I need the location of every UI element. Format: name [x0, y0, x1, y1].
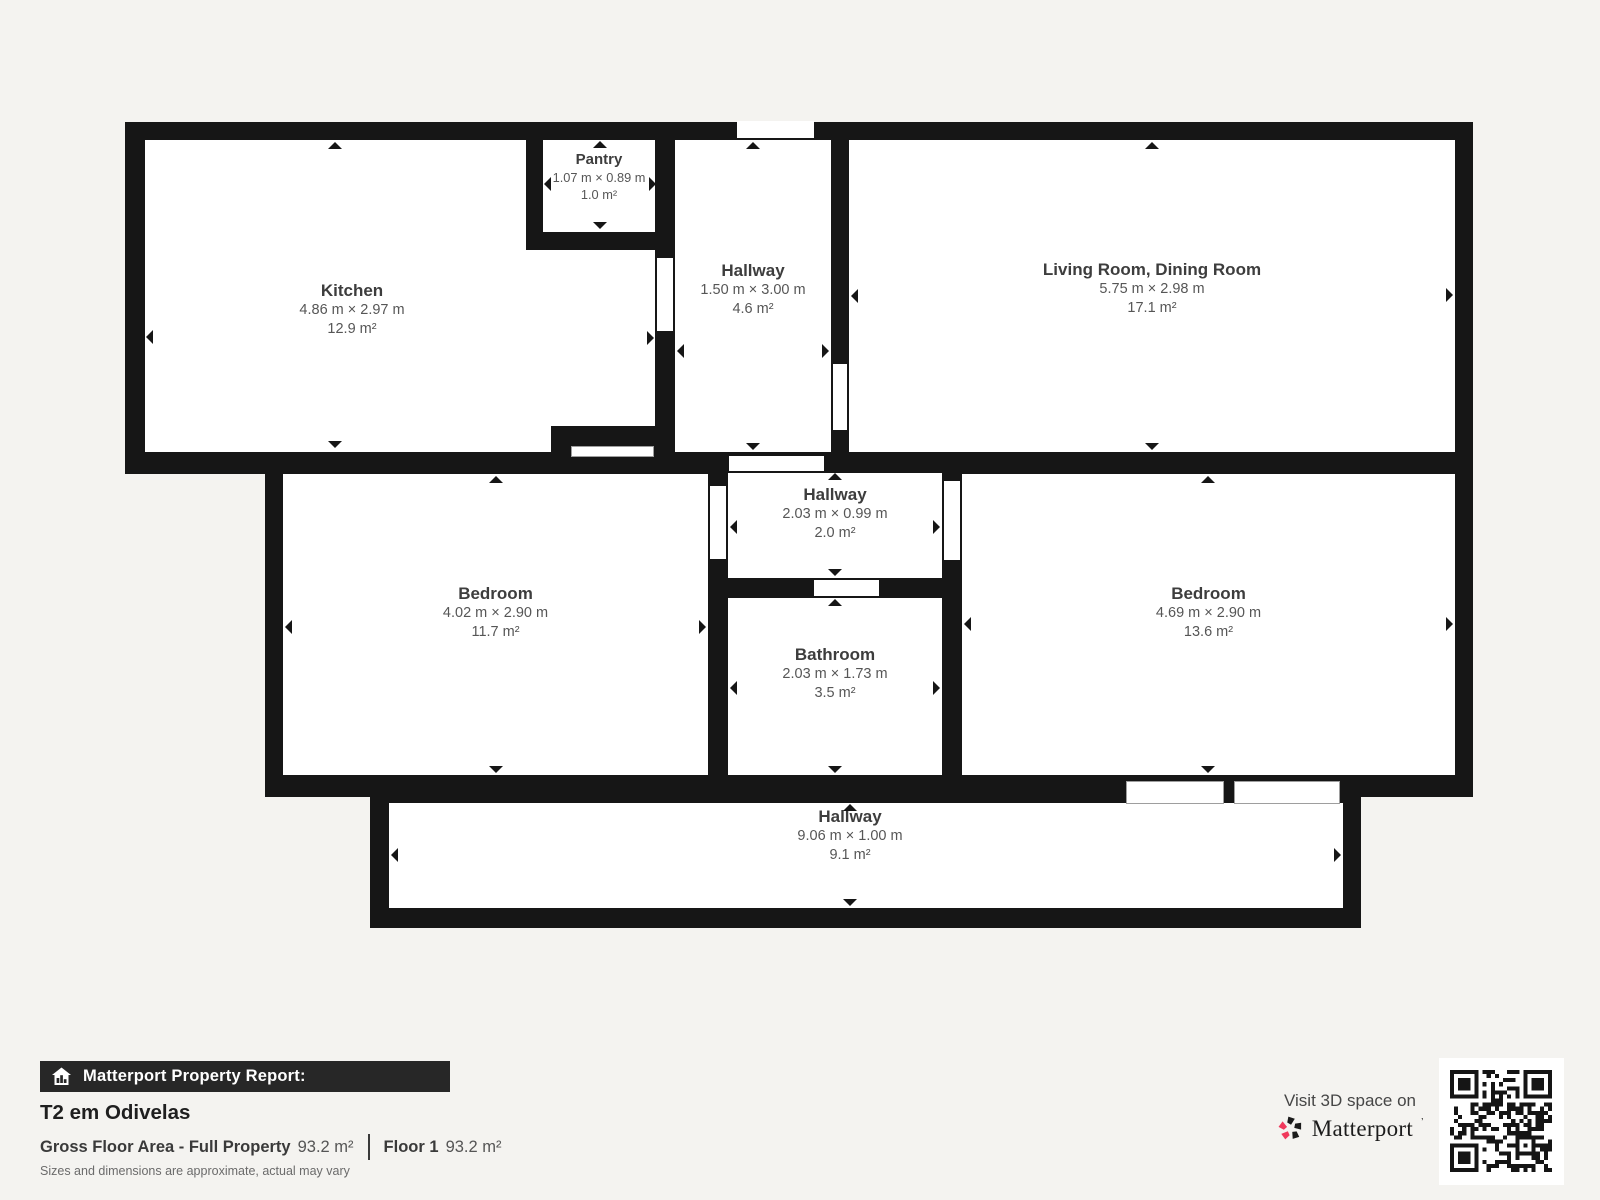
wall: [1455, 452, 1473, 797]
measure-arrow-down-icon: [843, 899, 857, 906]
trademark-mark: ’: [1421, 1117, 1423, 1128]
disclaimer-text: Sizes and dimensions are approximate, ac…: [40, 1164, 350, 1178]
measure-arrow-right-icon: [699, 620, 706, 634]
measure-arrow-right-icon: [822, 344, 829, 358]
measure-arrow-up-icon: [746, 142, 760, 149]
wall: [265, 452, 283, 797]
measure-arrow-left-icon: [730, 520, 737, 534]
measure-arrow-right-icon: [1446, 617, 1453, 631]
measure-arrow-left-icon: [146, 330, 153, 344]
measure-arrow-up-icon: [828, 599, 842, 606]
room-hallway-top: [675, 140, 831, 452]
measure-arrow-down-icon: [746, 443, 760, 450]
measure-arrow-left-icon: [285, 620, 292, 634]
room-hallway-middle: [728, 473, 942, 578]
wall: [1455, 122, 1473, 474]
measure-arrow-left-icon: [544, 177, 551, 191]
wall: [1343, 775, 1361, 928]
room-living-dining: [849, 140, 1455, 452]
floor-label: Floor 1: [384, 1138, 439, 1157]
matterport-brand: Matterport ’: [1245, 1115, 1455, 1142]
measure-arrow-left-icon: [677, 344, 684, 358]
measure-arrow-up-icon: [489, 476, 503, 483]
measure-arrow-down-icon: [593, 222, 607, 229]
measure-arrow-right-icon: [1446, 288, 1453, 302]
visit-3d-text: Visit 3D space on: [1245, 1091, 1455, 1111]
measure-arrow-down-icon: [489, 766, 503, 773]
measure-arrow-up-icon: [843, 804, 857, 811]
qr-code: [1439, 1058, 1564, 1185]
floor-area-line: Gross Floor Area - Full Property 93.2 m²…: [40, 1134, 502, 1160]
measure-arrow-down-icon: [828, 569, 842, 576]
wall: [370, 908, 1361, 928]
measure-arrow-down-icon: [328, 441, 342, 448]
door-opening: [1235, 782, 1339, 803]
measure-arrow-up-icon: [828, 473, 842, 480]
door-opening: [833, 364, 847, 430]
wall: [125, 122, 145, 474]
door-opening: [737, 121, 814, 138]
room-bedroom-right: [962, 474, 1455, 775]
measure-arrow-up-icon: [1201, 476, 1215, 483]
measure-arrow-left-icon: [851, 289, 858, 303]
measure-arrow-left-icon: [391, 848, 398, 862]
floor-value: 93.2 m²: [446, 1138, 502, 1157]
measure-arrow-right-icon: [1334, 848, 1341, 862]
report-bar: Matterport Property Report:: [40, 1061, 450, 1092]
measure-arrow-up-icon: [593, 141, 607, 148]
room-bathroom: [728, 598, 942, 775]
gross-area-label: Gross Floor Area - Full Property: [40, 1138, 291, 1157]
door-opening: [944, 481, 960, 560]
matterport-logo-icon: [1277, 1115, 1304, 1142]
gross-area-value: 93.2 m²: [298, 1138, 354, 1157]
floor-plan-page: Pantry 1.07 m × 0.89 m 1.0 m² Kitchen 4.…: [0, 0, 1600, 1200]
property-title: T2 em Odivelas: [40, 1101, 190, 1125]
door-opening: [814, 580, 879, 596]
measure-arrow-right-icon: [647, 331, 654, 345]
door-opening: [710, 486, 726, 559]
report-bar-label: Matterport Property Report:: [83, 1067, 306, 1086]
measure-arrow-down-icon: [1145, 443, 1159, 450]
wall: [370, 775, 389, 928]
door-opening: [729, 456, 824, 471]
measure-arrow-up-icon: [1145, 142, 1159, 149]
measure-arrow-up-icon: [328, 142, 342, 149]
door-opening: [657, 258, 673, 331]
window-opening: [572, 447, 653, 456]
room-bedroom-left: [283, 474, 708, 775]
matterport-wordmark: Matterport: [1312, 1116, 1413, 1142]
divider: [368, 1134, 370, 1160]
measure-arrow-down-icon: [828, 766, 842, 773]
house-chart-icon: [51, 1066, 72, 1087]
measure-arrow-right-icon: [649, 177, 656, 191]
measure-arrow-left-icon: [964, 617, 971, 631]
measure-arrow-right-icon: [933, 520, 940, 534]
measure-arrow-left-icon: [730, 681, 737, 695]
room-pantry: [543, 140, 655, 232]
room-hallway-bottom: [389, 803, 1343, 908]
door-opening: [1127, 782, 1223, 803]
measure-arrow-down-icon: [1201, 766, 1215, 773]
measure-arrow-right-icon: [933, 681, 940, 695]
